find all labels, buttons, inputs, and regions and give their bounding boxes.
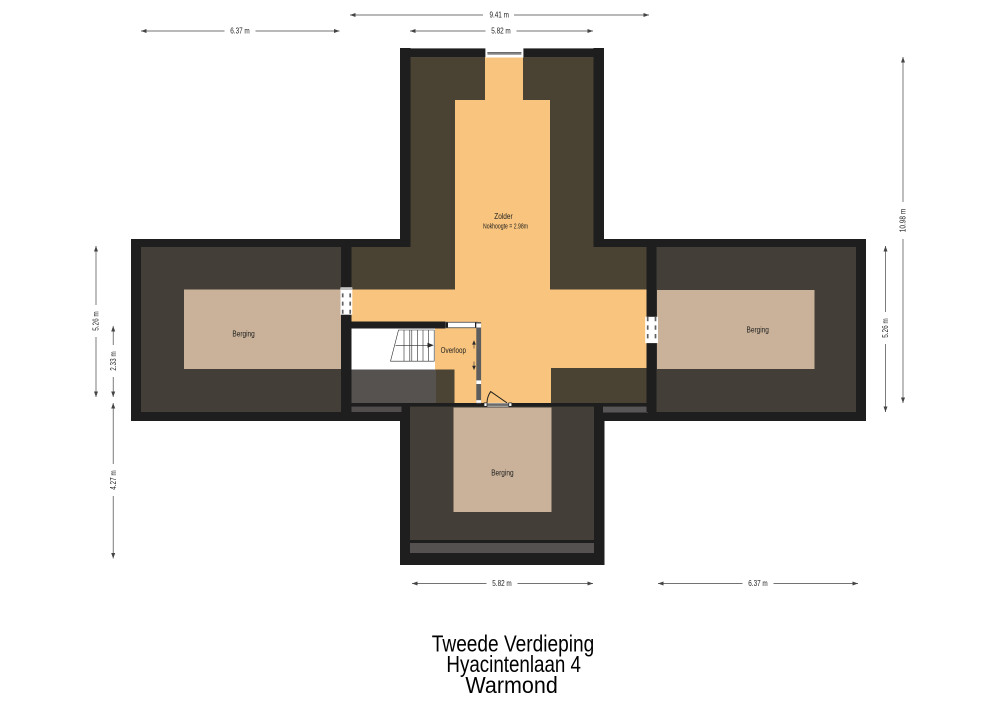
svg-text:2.33 m: 2.33 m [109, 351, 118, 371]
svg-text:5.26 m: 5.26 m [881, 318, 890, 338]
svg-text:10.98 m: 10.98 m [899, 208, 908, 232]
svg-text:5.26 m: 5.26 m [92, 311, 101, 331]
svg-text:Berging: Berging [747, 326, 769, 335]
svg-text:6.37 m: 6.37 m [230, 27, 250, 36]
svg-text:9.41 m: 9.41 m [489, 11, 509, 20]
svg-text:5.82 m: 5.82 m [492, 579, 512, 588]
svg-text:Berging: Berging [232, 330, 254, 339]
svg-text:Overloop: Overloop [441, 346, 467, 355]
svg-text:Zolder: Zolder [494, 212, 513, 221]
svg-text:4.27 m: 4.27 m [109, 470, 118, 490]
svg-text:Berging: Berging [491, 469, 513, 478]
svg-text:Nokhoogte = 2.98m: Nokhoogte = 2.98m [483, 221, 528, 230]
svg-text:Warmond: Warmond [465, 672, 557, 698]
svg-text:5.82 m: 5.82 m [491, 27, 511, 36]
svg-text:6.37 m: 6.37 m [748, 579, 768, 588]
